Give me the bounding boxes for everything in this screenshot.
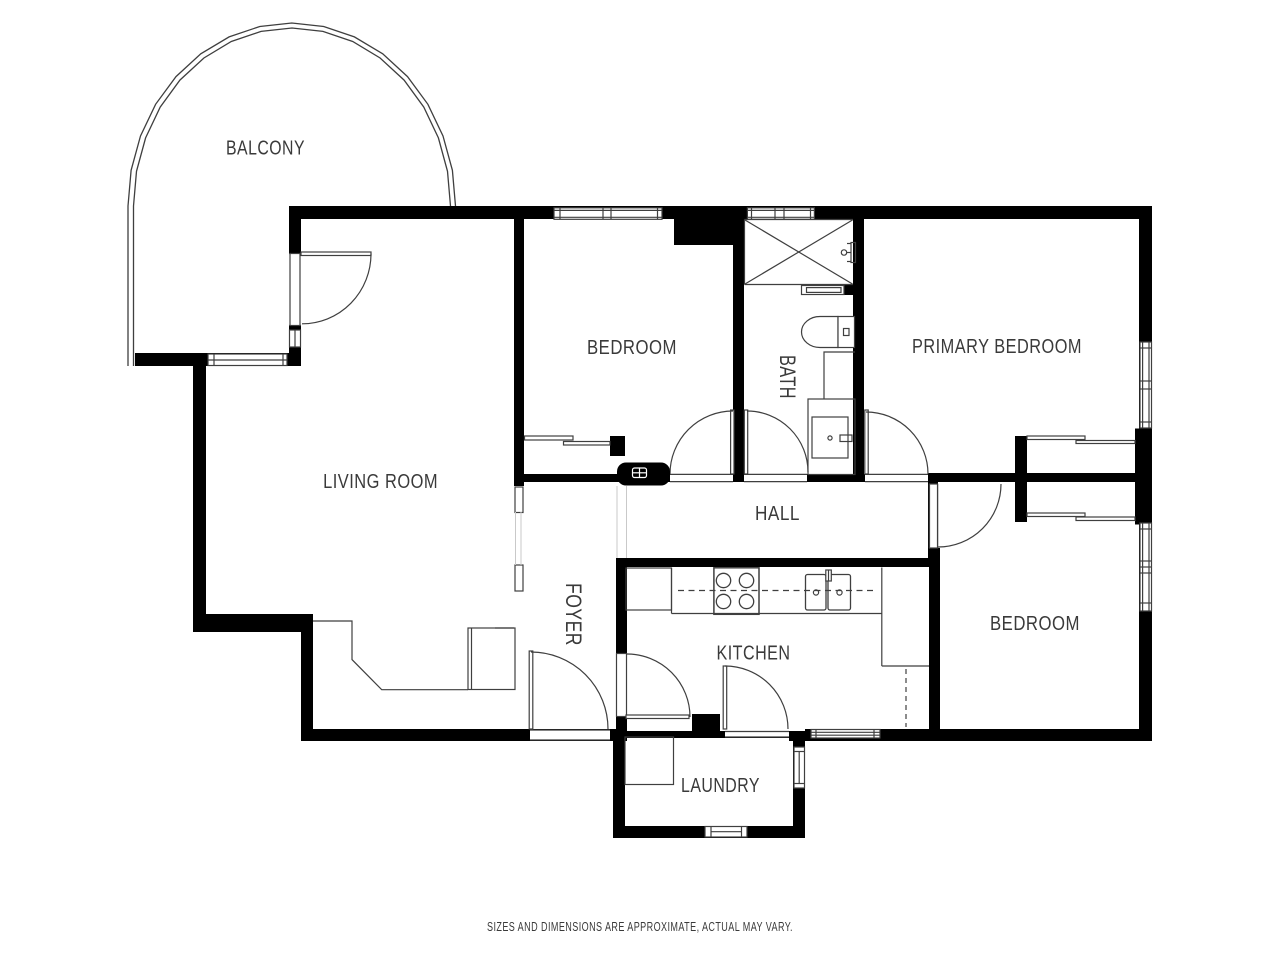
svg-text:BEDROOM: BEDROOM — [990, 613, 1080, 635]
svg-text:BEDROOM: BEDROOM — [587, 337, 677, 359]
svg-text:BATH: BATH — [775, 355, 800, 399]
svg-text:LAUNDRY: LAUNDRY — [681, 775, 760, 797]
svg-text:SIZES AND DIMENSIONS ARE APPRO: SIZES AND DIMENSIONS ARE APPROXIMATE, AC… — [487, 919, 793, 934]
svg-text:BALCONY: BALCONY — [226, 138, 305, 160]
svg-text:FOYER: FOYER — [561, 583, 586, 646]
svg-text:KITCHEN: KITCHEN — [717, 642, 791, 664]
svg-text:LIVING ROOM: LIVING ROOM — [323, 471, 438, 493]
svg-text:PRIMARY BEDROOM: PRIMARY BEDROOM — [912, 336, 1082, 358]
svg-text:HALL: HALL — [755, 503, 800, 525]
